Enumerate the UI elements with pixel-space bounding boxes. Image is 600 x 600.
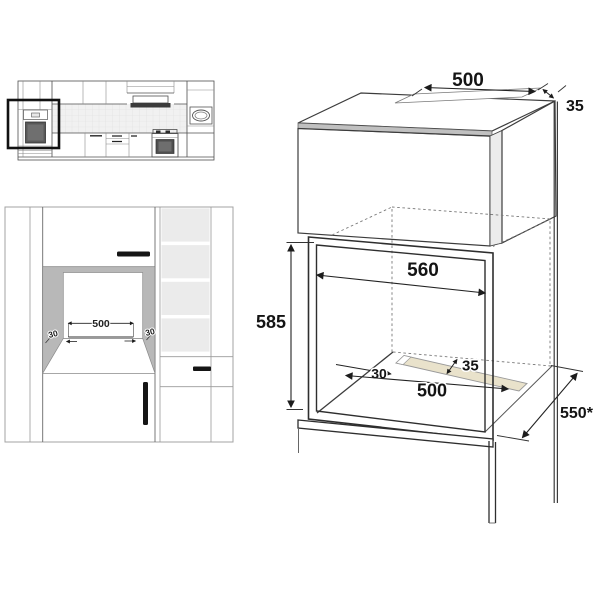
cabinet-front-face bbox=[298, 129, 490, 247]
dim-floor-vent-width: 500 bbox=[417, 381, 447, 401]
dim-niche-width: 560 bbox=[407, 260, 439, 281]
drawer-handle bbox=[193, 367, 211, 372]
upper-door-handle bbox=[117, 252, 150, 257]
front-edge-return bbox=[490, 131, 502, 247]
cabinet-isometric-diagram: 500 35 560 585 30 35 500 550* bbox=[256, 70, 594, 523]
kitchen-overview-diagram bbox=[8, 81, 214, 160]
dim-cutout-width-front: 500 bbox=[92, 318, 110, 330]
upper-cabinet-box bbox=[298, 88, 556, 246]
dim-niche-height: 585 bbox=[256, 312, 286, 332]
lower-door-handle bbox=[143, 382, 148, 425]
range-stove bbox=[152, 130, 178, 158]
range-hood bbox=[131, 96, 171, 108]
dim-top-cutout-width: 500 bbox=[452, 70, 484, 91]
diagram-canvas: 500 30 30 bbox=[0, 0, 600, 600]
built-in-oven bbox=[24, 110, 48, 143]
dim-top-rear-gap: 35 bbox=[566, 98, 584, 115]
kitchen-backsplash-tiles bbox=[52, 104, 187, 133]
kitchen-handles bbox=[90, 136, 137, 144]
hidden-edges bbox=[332, 207, 551, 366]
base-cabinet bbox=[298, 420, 496, 523]
cabinet-front-view-diagram: 500 30 30 bbox=[5, 207, 233, 442]
base-right-post bbox=[489, 441, 496, 523]
porthole-appliance bbox=[190, 107, 212, 124]
dim-floor-vent-depth: 35 bbox=[462, 358, 479, 375]
hood-bar bbox=[131, 103, 171, 108]
installation-diagram-page: 500 30 30 bbox=[0, 0, 600, 600]
dim-cabinet-depth: 550* bbox=[560, 405, 594, 422]
